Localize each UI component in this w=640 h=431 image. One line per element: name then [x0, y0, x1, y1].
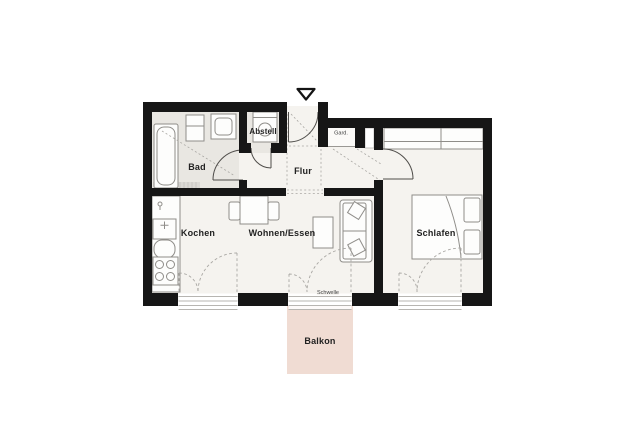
wall-right: [483, 118, 492, 306]
label-wohnen-essen: Wohnen/Essen: [249, 228, 316, 238]
label-abstell: Abstell: [249, 127, 276, 136]
wall-abstell-stub-left: [239, 143, 251, 153]
bed-pillow-2: [464, 230, 480, 254]
dining-table: [240, 196, 268, 224]
wall-bottom-2: [238, 293, 288, 306]
label-flur: Flur: [294, 166, 312, 176]
wall-top-left: [143, 102, 287, 112]
bed-pillow-1: [464, 198, 480, 222]
wall-shaft-stub: [355, 128, 365, 148]
toilet: [186, 115, 204, 141]
wall-bottom-4: [462, 293, 492, 306]
wall-abstell-stub-right: [271, 143, 287, 153]
bedroom-window-sill-box: [399, 294, 462, 310]
wall-top-right: [328, 118, 492, 128]
floor-plan-page: Bad Abstell Flur Kochen Wohnen/Essen Sch…: [0, 0, 640, 431]
wall-interior-horizontal-west: [152, 188, 286, 196]
dining-chair-left: [229, 202, 240, 220]
wall-bad-right-lower: [239, 180, 247, 196]
wall-living-bedroom: [374, 180, 383, 306]
shaft-niche: [365, 128, 374, 148]
wall-bottom-1: [143, 293, 178, 306]
wardrobe: [384, 128, 483, 149]
label-bad: Bad: [188, 162, 206, 172]
label-schlafen: Schlafen: [416, 228, 455, 238]
wall-bedroom-door-stub: [374, 128, 383, 150]
floor-plan-drawing: Bad Abstell Flur Kochen Wohnen/Essen Sch…: [0, 0, 640, 431]
coffee-table: [313, 217, 333, 248]
kitchen-window-sill-box: [179, 294, 238, 310]
wall-left: [143, 102, 152, 306]
dining-chair-right: [268, 202, 279, 220]
label-garderobe: Gard.: [334, 131, 348, 137]
wall-entrance-stub: [318, 102, 328, 147]
label-balkon: Balkon: [304, 336, 335, 346]
label-kochen: Kochen: [181, 228, 215, 238]
entrance-marker-icon: [298, 89, 315, 100]
label-schwelle: Schwelle: [317, 290, 339, 296]
